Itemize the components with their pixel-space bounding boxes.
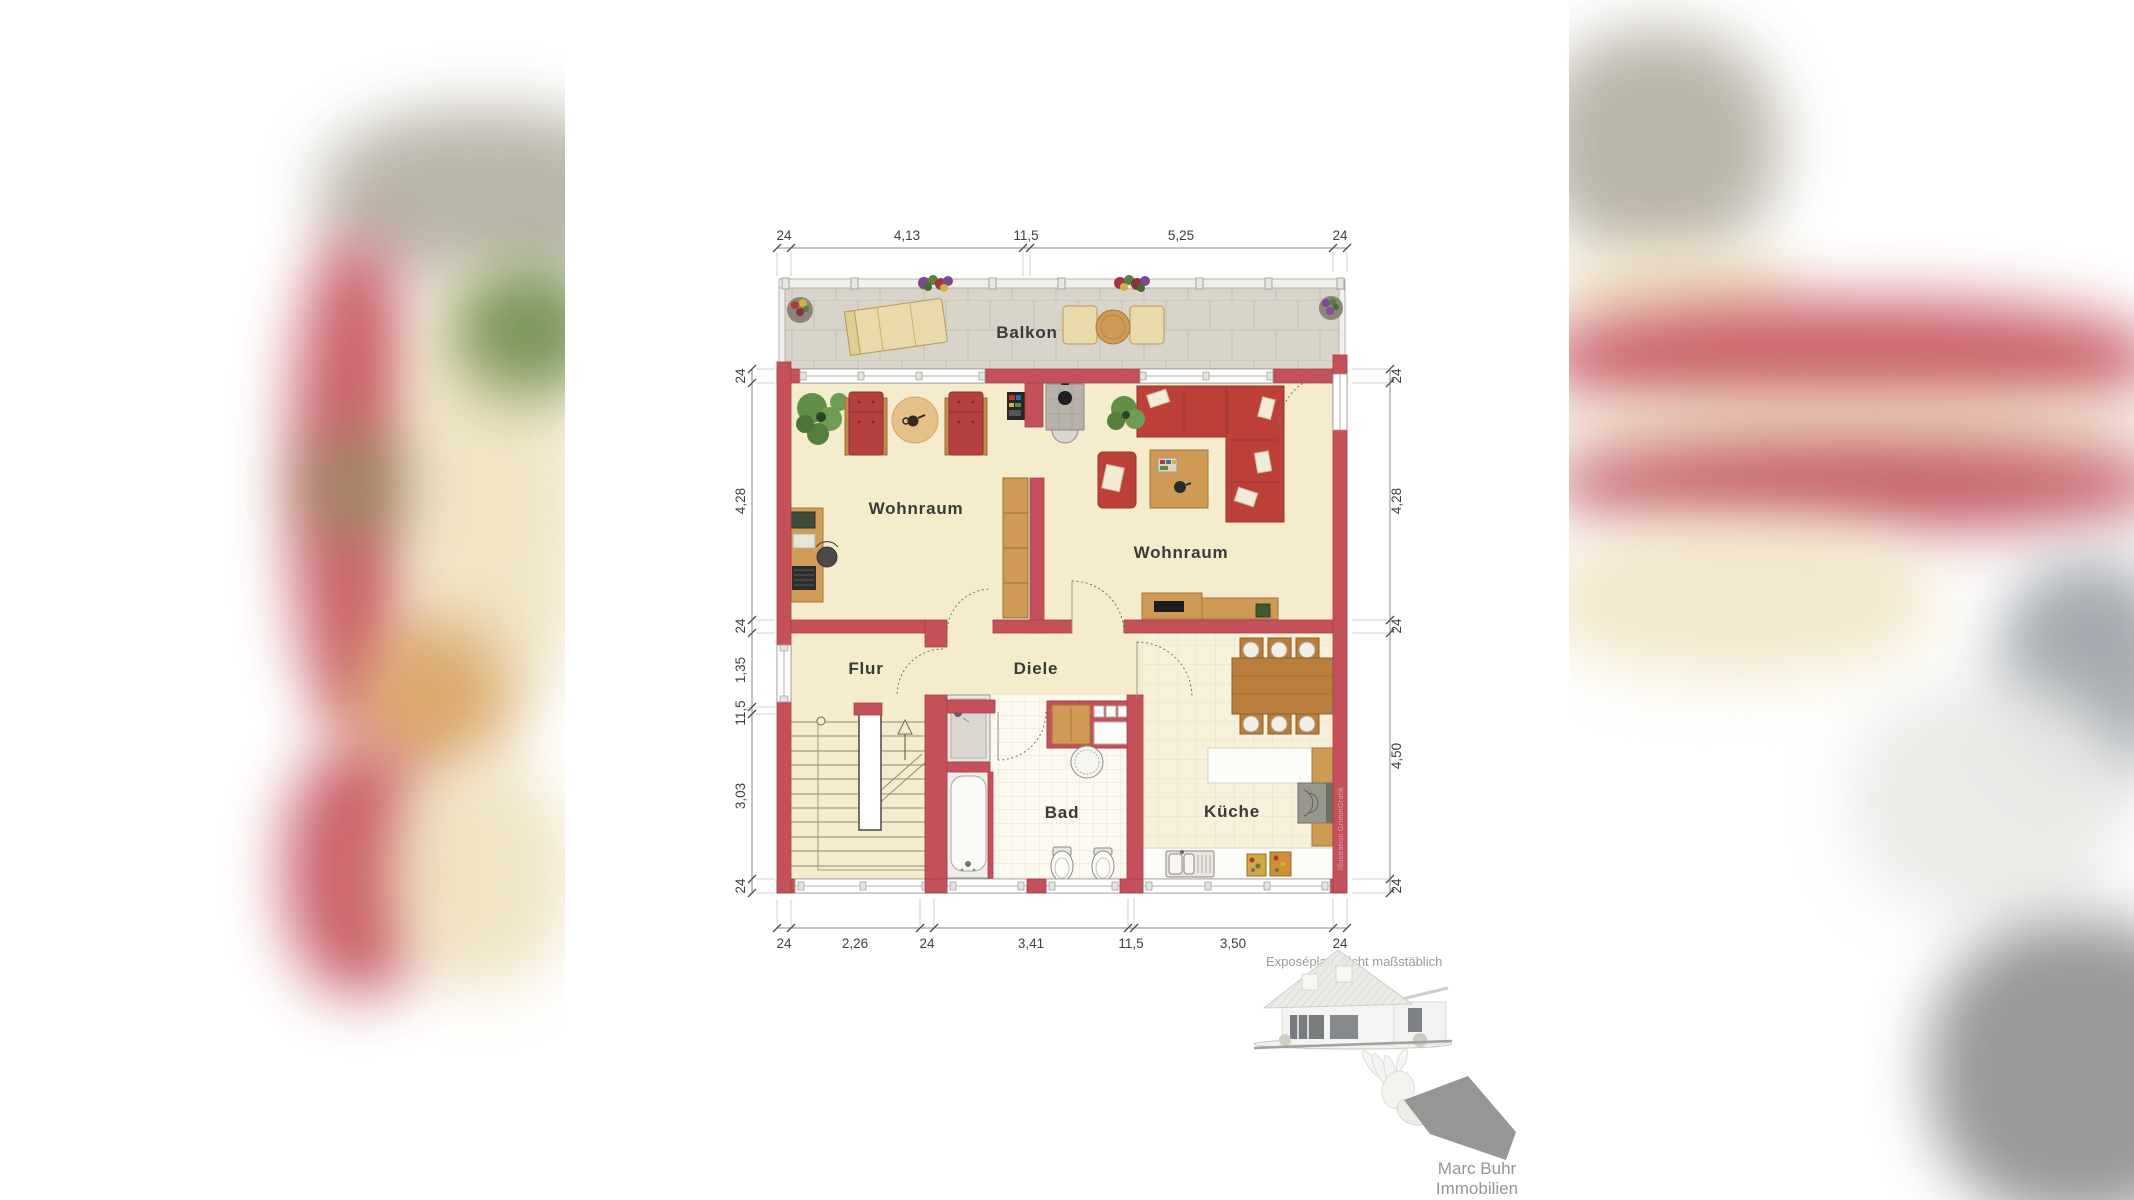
agency-logo: Marc Buhr Immobilien (1254, 950, 1518, 1198)
wall-bad-kueche (1127, 695, 1143, 879)
vanity-unit (1047, 701, 1131, 748)
dining-table (1232, 658, 1333, 714)
kitchen-cabinet (1312, 823, 1333, 846)
dim-top-3: 5,25 (1168, 228, 1194, 243)
wall-middle-stub (925, 620, 947, 647)
wall-shelf (1007, 392, 1026, 420)
wall-middle-center (993, 620, 1072, 633)
dim-left-2: 24 (733, 618, 748, 634)
bathtub (947, 772, 990, 878)
kitchen-counter (1208, 748, 1312, 783)
dim-top-1: 4,13 (894, 228, 920, 243)
coffee-table (1150, 450, 1208, 508)
bidet (1092, 848, 1114, 881)
wall-divider-mid (1030, 478, 1044, 633)
dim-bottom-3: 3,41 (1018, 936, 1044, 951)
desk-chair (817, 547, 837, 567)
armchair (845, 392, 887, 455)
armchair (1098, 452, 1136, 508)
label-bad: Bad (1045, 803, 1080, 822)
brand-subtitle: Immobilien (1436, 1179, 1518, 1198)
dim-left-5: 3,03 (733, 783, 748, 809)
round-rug (892, 397, 938, 443)
washbasin (1071, 746, 1103, 778)
pillow (1254, 451, 1271, 473)
label-diele: Diele (1014, 659, 1059, 678)
label-kueche: Küche (1204, 802, 1260, 821)
bookshelf (1003, 478, 1028, 618)
sink (1166, 850, 1214, 877)
oven (1298, 783, 1333, 823)
floorplan-page: Balkon (0, 0, 2134, 1200)
dim-left-4: 11,5 (733, 700, 748, 725)
label-balkon: Balkon (996, 323, 1057, 342)
balcony-seating (1063, 306, 1164, 344)
tv (1154, 601, 1184, 612)
dim-top-4: 24 (1332, 228, 1348, 243)
wall-stair-void-cap (854, 703, 882, 715)
kitchen-cabinet (1312, 748, 1333, 783)
dim-top-2: 11,5 (1013, 228, 1038, 243)
wall-left (777, 362, 791, 893)
illustrator-watermark: Illustration GrimmGrafik (1338, 787, 1345, 870)
wall-middle-right (1124, 620, 1333, 633)
dim-right-3: 4,50 (1389, 743, 1404, 769)
dim-bottom-5: 3,50 (1220, 936, 1246, 951)
dim-bottom-2: 24 (919, 936, 935, 951)
toilet (1051, 847, 1073, 881)
suit-arm (1404, 1076, 1516, 1160)
label-wohnraum-right: Wohnraum (1134, 543, 1229, 562)
dim-left-1: 4,28 (733, 488, 748, 514)
label-wohnraum-left: Wohnraum (869, 499, 964, 518)
dim-right-4: 24 (1389, 878, 1404, 894)
dim-right-2: 24 (1389, 618, 1404, 634)
dim-top-0: 24 (776, 228, 792, 243)
flower-pot (1319, 296, 1343, 320)
wall-tub-side (988, 772, 993, 878)
dim-bottom-1: 2,26 (842, 936, 868, 951)
wall-stair-bad (925, 695, 947, 879)
dim-right-1: 4,28 (1389, 488, 1404, 514)
room-balkon: Balkon (779, 275, 1345, 369)
dim-left-0: 24 (733, 368, 748, 384)
label-flur: Flur (848, 659, 883, 678)
wall-middle-left (791, 620, 925, 633)
dim-right-0: 24 (1389, 368, 1404, 384)
balcony-railing-left (779, 288, 785, 369)
floorplan-svg: Balkon (0, 0, 2134, 1200)
dim-left-3: 1,35 (733, 657, 748, 683)
dim-bottom-0: 24 (776, 936, 792, 951)
wall-bad-north (947, 700, 995, 713)
wall-shower-tub (947, 762, 990, 772)
stair-void (859, 712, 881, 830)
dim-bottom-6: 24 (1332, 936, 1348, 951)
dim-left-6: 24 (733, 878, 748, 894)
dim-bottom-4: 11,5 (1118, 936, 1143, 951)
brand-name: Marc Buhr (1438, 1159, 1517, 1178)
wall-divider-stub (1025, 383, 1043, 427)
flower-pot (787, 297, 813, 323)
armchair (945, 392, 987, 455)
